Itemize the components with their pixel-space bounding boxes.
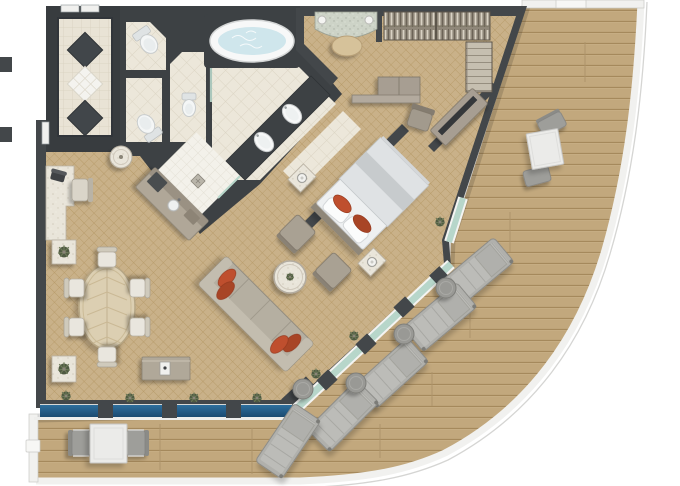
- window-mullion: [98, 403, 113, 418]
- sideboard: [142, 357, 190, 380]
- pedestal-with-plant: [52, 356, 76, 382]
- deck-table: [90, 424, 127, 463]
- deck-table: [526, 128, 564, 169]
- floor-plan-canvas: [0, 0, 680, 486]
- dresser-shelf: [352, 95, 420, 103]
- deck-side-table: [293, 379, 313, 399]
- deck-side-table: [394, 324, 414, 344]
- railing-post-left: [26, 440, 40, 452]
- dining-chair: [130, 278, 150, 298]
- window-mullion: [226, 403, 241, 418]
- whirlpool-tub: [204, 14, 300, 68]
- desk-chair: [72, 178, 93, 202]
- corridor-wall-stub: [0, 57, 12, 72]
- dining-chair: [130, 317, 150, 337]
- dining-chair: [97, 347, 117, 367]
- closet-shelves: [466, 42, 492, 92]
- entry-door-leaf: [61, 5, 79, 12]
- vanity-stool: [332, 36, 362, 56]
- table-lamp: [318, 16, 326, 24]
- entry-foyer: [42, 5, 124, 152]
- floor-plan-svg: [0, 0, 680, 486]
- deck-side-table: [436, 278, 456, 298]
- railing-post-top: [556, 0, 586, 8]
- dining-chair: [64, 278, 84, 298]
- pedestal-with-plant: [52, 240, 76, 264]
- bidet: [182, 93, 196, 117]
- dining-chair: [97, 247, 117, 267]
- deck-chair: [127, 430, 149, 456]
- window-mullion: [162, 403, 177, 418]
- dining-chair: [64, 317, 84, 337]
- corridor-wall-stub: [0, 127, 12, 142]
- corridor-door-leaf: [42, 122, 49, 144]
- table-lamp: [365, 16, 373, 24]
- deck-side-table: [346, 373, 366, 393]
- coffee-table: [274, 261, 306, 293]
- dining-table: [79, 265, 135, 349]
- entry-door-leaf: [81, 5, 99, 12]
- deck-chair: [68, 430, 90, 456]
- round-side-table: [110, 146, 132, 168]
